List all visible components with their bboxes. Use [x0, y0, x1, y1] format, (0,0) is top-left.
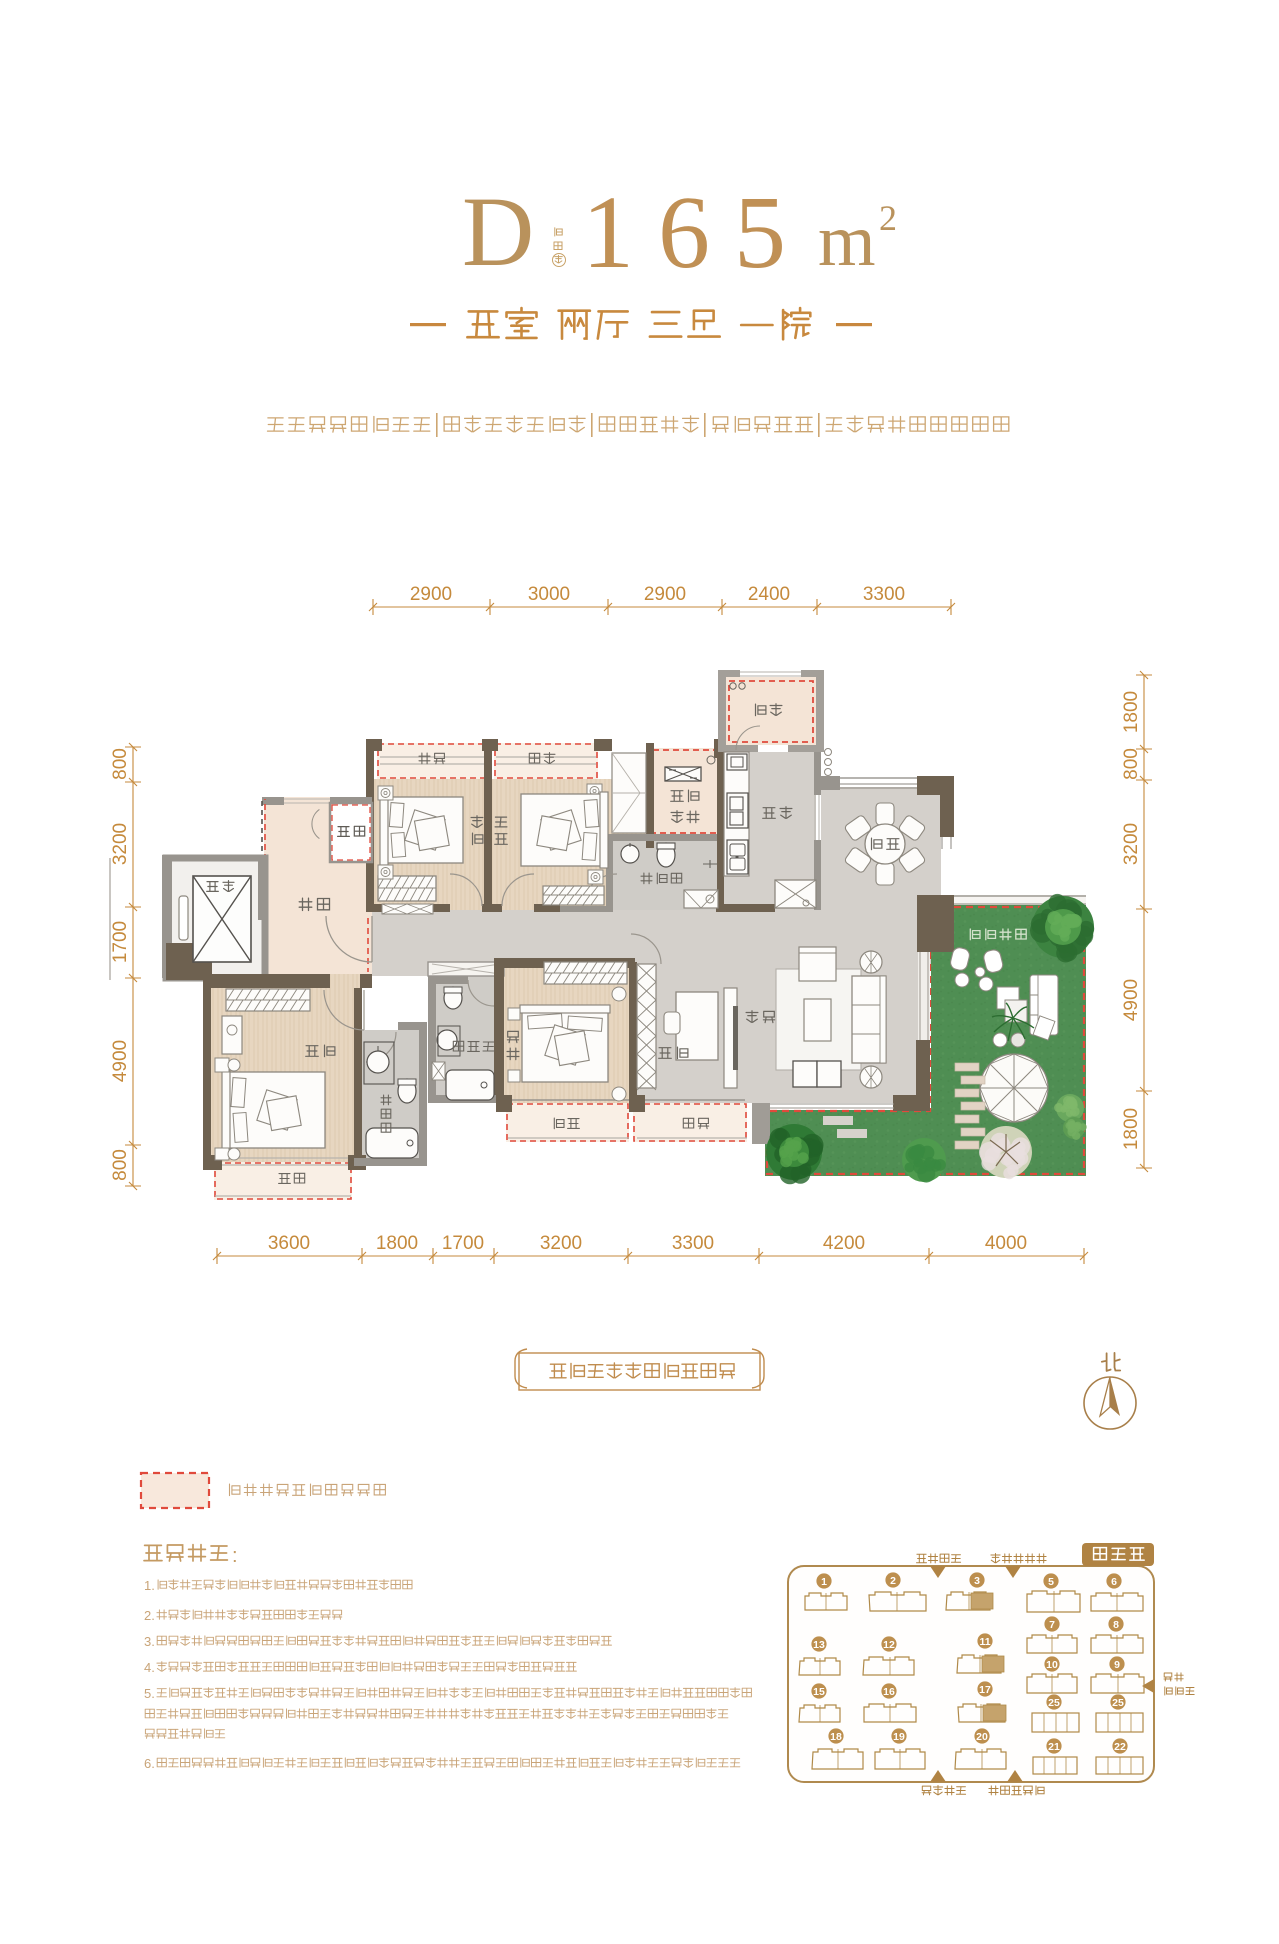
svg-text:800: 800: [110, 1149, 131, 1181]
svg-text:800: 800: [1121, 748, 1142, 780]
svg-text:3600: 3600: [268, 1233, 310, 1254]
svg-text:11: 11: [979, 1636, 990, 1648]
svg-text:6.: 6.: [144, 1756, 155, 1771]
svg-text:3300: 3300: [672, 1233, 714, 1254]
svg-text:D: D: [462, 176, 534, 287]
svg-text:17: 17: [979, 1684, 991, 1696]
svg-text:1700: 1700: [110, 921, 131, 963]
svg-text:3000: 3000: [528, 584, 570, 605]
svg-text:165: 165: [582, 175, 810, 290]
svg-text:3200: 3200: [110, 823, 131, 865]
svg-text:4.: 4.: [144, 1660, 155, 1675]
svg-text:10: 10: [1046, 1659, 1058, 1671]
svg-text:9: 9: [1114, 1659, 1120, 1671]
svg-text:13: 13: [813, 1639, 825, 1651]
svg-text:800: 800: [110, 748, 131, 780]
svg-text:3200: 3200: [1121, 823, 1142, 865]
svg-text:2900: 2900: [644, 584, 686, 605]
svg-text:m: m: [818, 200, 876, 282]
svg-text:1.: 1.: [144, 1578, 155, 1593]
svg-text:22: 22: [1114, 1741, 1126, 1753]
svg-text:1700: 1700: [442, 1233, 484, 1254]
svg-text:2: 2: [879, 198, 897, 238]
svg-text:7: 7: [1049, 1619, 1055, 1631]
svg-text:25: 25: [1112, 1697, 1124, 1709]
svg-text:2.: 2.: [144, 1608, 155, 1623]
svg-text:6: 6: [1111, 1576, 1117, 1588]
svg-text:3: 3: [974, 1575, 980, 1587]
svg-text:25: 25: [1048, 1697, 1060, 1709]
svg-text:4200: 4200: [823, 1233, 865, 1254]
svg-text:3.: 3.: [144, 1634, 155, 1649]
svg-text:16: 16: [883, 1686, 895, 1698]
svg-text:19: 19: [893, 1731, 905, 1743]
svg-text:1: 1: [821, 1576, 827, 1588]
svg-text:12: 12: [883, 1639, 895, 1651]
svg-text:21: 21: [1048, 1741, 1060, 1753]
svg-text::: :: [232, 1545, 238, 1567]
svg-text:4900: 4900: [110, 1040, 131, 1082]
svg-text:3200: 3200: [540, 1233, 582, 1254]
svg-text:20: 20: [976, 1731, 988, 1743]
svg-text:4900: 4900: [1121, 979, 1142, 1021]
svg-text:2: 2: [890, 1575, 896, 1587]
svg-text:8: 8: [1113, 1619, 1119, 1631]
svg-text:1800: 1800: [376, 1233, 418, 1254]
svg-text:18: 18: [830, 1731, 842, 1743]
svg-text:15: 15: [813, 1686, 825, 1698]
svg-text:5.: 5.: [144, 1686, 155, 1701]
svg-text:4000: 4000: [985, 1233, 1027, 1254]
svg-text:2400: 2400: [748, 584, 790, 605]
svg-text:1800: 1800: [1121, 1108, 1142, 1150]
svg-text:2900: 2900: [410, 584, 452, 605]
svg-text:5: 5: [1048, 1576, 1054, 1588]
svg-text:3300: 3300: [863, 584, 905, 605]
svg-text:1800: 1800: [1121, 691, 1142, 733]
